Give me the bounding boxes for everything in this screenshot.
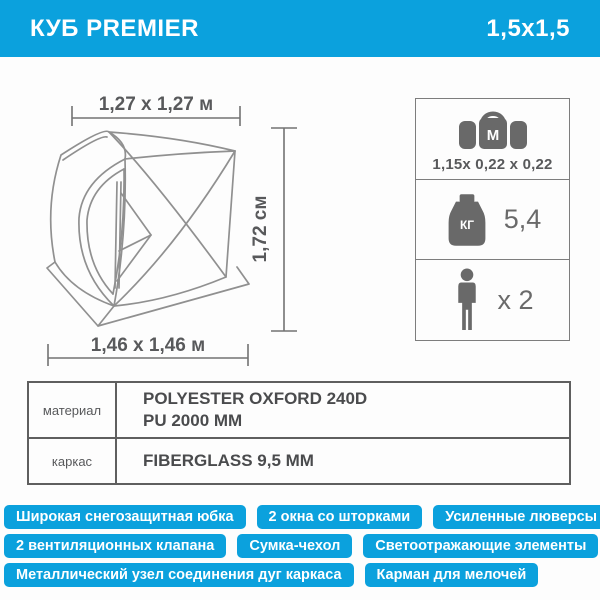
frame-value: FIBERGLASS 9,5 MM <box>117 439 569 483</box>
materials-table: материал POLYESTER OXFORD 240D PU 2000 M… <box>27 381 571 485</box>
top-width-dimension-label: 1,27 х 1,27 м <box>99 94 213 115</box>
bottom-width-dimension-label: 1,46 х 1,46 м <box>91 335 205 356</box>
table-row: материал POLYESTER OXFORD 240D PU 2000 M… <box>29 383 569 439</box>
material-value: POLYESTER OXFORD 240D PU 2000 MM <box>117 383 569 437</box>
product-title: КУБ PREMIER <box>30 15 199 43</box>
feature-row-3: Металлический узел соединения дуг каркас… <box>4 563 598 587</box>
feature-row-1: Широкая снегозащитная юбка 2 окна со што… <box>4 505 598 529</box>
packed-size-box: М 1,15х 0,22 х 0,22 <box>416 99 569 179</box>
packed-size-value: 1,15х 0,22 х 0,22 <box>432 156 552 173</box>
feature-row-2: 2 вентиляционных клапана Сумка-чехол Све… <box>4 534 598 558</box>
feature-badge: Широкая снегозащитная юбка <box>4 505 246 529</box>
feature-badge: Карман для мелочей <box>365 563 539 587</box>
material-label: материал <box>29 383 117 437</box>
feature-badge: 2 окна со шторками <box>257 505 423 529</box>
weight-box: КГ 5,4 <box>416 179 569 260</box>
person-icon <box>451 268 483 332</box>
product-spec-card: КУБ PREMIER 1,5x1,5 1,27 х 1,27 м 1,72 с… <box>0 0 600 600</box>
height-dimension-label: 1,72 см <box>250 196 271 263</box>
feature-badge: 2 вентиляционных клапана <box>4 534 226 558</box>
weight-unit: КГ <box>460 218 474 232</box>
capacity-value: х 2 <box>497 285 533 316</box>
table-row: каркас FIBERGLASS 9,5 MM <box>29 439 569 483</box>
weight-value: 5,4 <box>504 204 542 235</box>
frame-label: каркас <box>29 439 117 483</box>
feature-badge: Светоотражающие элементы <box>363 534 598 558</box>
capacity-box: х 2 <box>416 259 569 340</box>
bag-icon: М <box>456 105 530 151</box>
spec-boxes: М 1,15х 0,22 х 0,22 КГ 5,4 х 2 <box>415 98 570 341</box>
feature-badge: Сумка-чехол <box>237 534 352 558</box>
product-size: 1,5x1,5 <box>486 15 570 43</box>
material-value-line2: PU 2000 MM <box>143 410 569 432</box>
tent-drawing <box>47 131 249 326</box>
tent-diagram: 1,27 х 1,27 м 1,72 см 1,46 х 1,46 м <box>30 85 330 380</box>
header-bar: КУБ PREMIER 1,5x1,5 <box>0 0 600 57</box>
feature-badge: Металлический узел соединения дуг каркас… <box>4 563 354 587</box>
height-dimension-line <box>271 128 297 331</box>
tent-illustration-svg: 1,27 х 1,27 м 1,72 см 1,46 х 1,46 м <box>30 85 330 380</box>
frame-value-line1: FIBERGLASS 9,5 MM <box>143 450 569 472</box>
bag-letter: М <box>486 127 499 144</box>
material-value-line1: POLYESTER OXFORD 240D <box>143 388 569 410</box>
feature-badges: Широкая снегозащитная юбка 2 окна со што… <box>4 505 598 592</box>
weight-icon: КГ <box>444 192 490 248</box>
feature-badge: Усиленные люверсы 12 мм <box>433 505 600 529</box>
